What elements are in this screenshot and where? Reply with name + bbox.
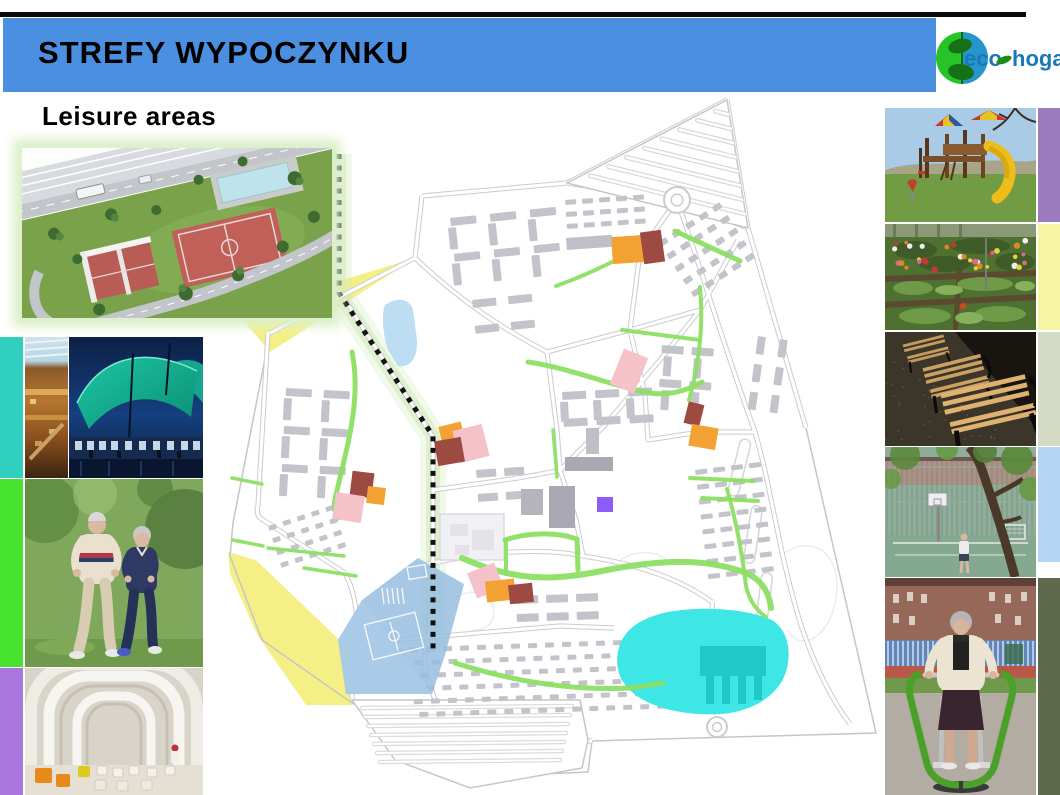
accent-strip-right-blue — [1038, 447, 1060, 562]
accent-strip-right-darkolive — [1038, 578, 1060, 795]
map-marker — [434, 437, 465, 466]
map-marker — [611, 235, 646, 264]
photo-playground — [885, 108, 1036, 222]
photo-sports-court — [885, 447, 1036, 577]
accent-strip-purple — [0, 668, 23, 795]
building-cluster — [282, 388, 350, 475]
photo-tented-leisure-building — [69, 337, 203, 478]
photo-modern-white-interior — [25, 668, 203, 795]
photo-community-garden — [885, 224, 1036, 330]
photo-outdoor-exercise-machine — [885, 578, 1036, 795]
building-cluster — [565, 194, 646, 228]
map-marker — [332, 492, 365, 523]
map-marker — [684, 401, 705, 426]
building-cluster — [279, 398, 330, 498]
photo-seniors-jogging — [25, 479, 203, 667]
accent-strip-teal — [0, 337, 23, 478]
photo-shopping-mall-interior — [25, 337, 68, 478]
map-marker — [640, 230, 665, 265]
building-cluster — [450, 207, 560, 262]
accent-strip-right-yellow — [1038, 224, 1060, 330]
map-marker — [597, 497, 613, 512]
map-marker — [688, 424, 718, 450]
accent-strip-green — [0, 479, 23, 667]
accent-strip-right-purple — [1038, 108, 1060, 222]
photo-park-benches — [885, 332, 1036, 446]
map-marker — [508, 583, 534, 604]
building-cluster — [748, 336, 788, 413]
map-marker — [366, 486, 386, 505]
sports-complex-render — [22, 148, 332, 318]
accent-strip-right-olive — [1038, 332, 1060, 446]
yellow-band-southwest — [228, 552, 355, 705]
